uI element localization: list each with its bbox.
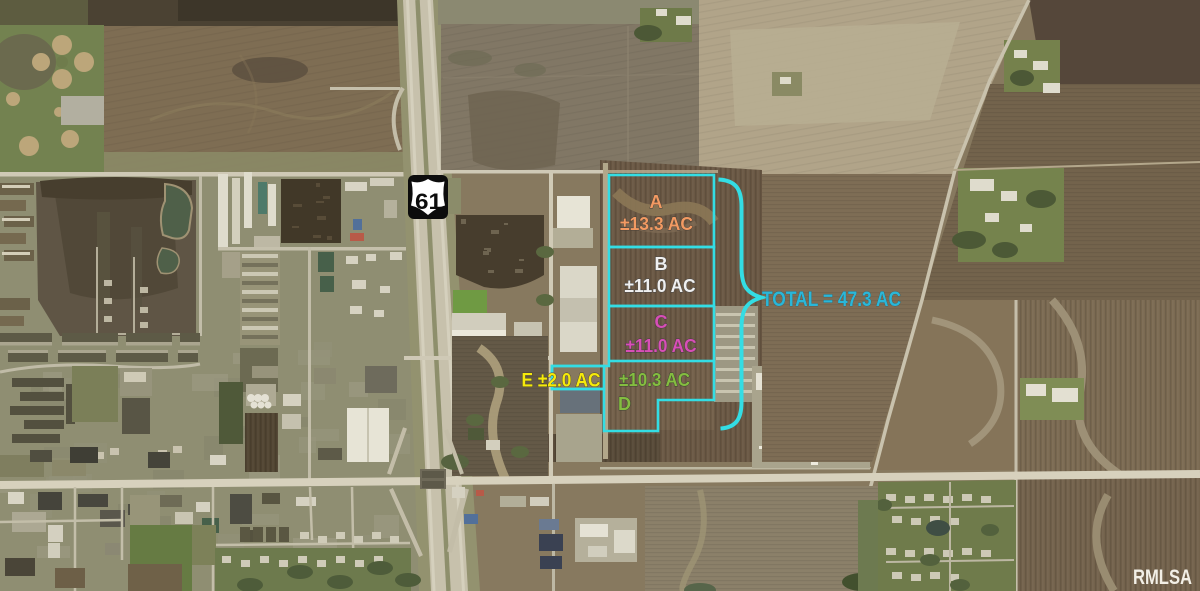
- svg-text:E ±2.0 AC: E ±2.0 AC: [522, 371, 601, 392]
- svg-text:A: A: [650, 192, 663, 212]
- svg-text:±10.3 AC: ±10.3 AC: [619, 370, 690, 390]
- svg-text:D: D: [618, 394, 631, 414]
- svg-text:61: 61: [415, 189, 442, 214]
- svg-text:±11.0 AC: ±11.0 AC: [626, 336, 697, 356]
- svg-text:TOTAL = 47.3 AC: TOTAL = 47.3 AC: [762, 288, 901, 311]
- svg-text:RMLSA: RMLSA: [1133, 566, 1192, 589]
- svg-text:±13.3 AC: ±13.3 AC: [620, 214, 693, 234]
- svg-text:C: C: [655, 312, 668, 332]
- svg-text:±11.0 AC: ±11.0 AC: [625, 276, 696, 296]
- svg-text:B: B: [655, 254, 668, 274]
